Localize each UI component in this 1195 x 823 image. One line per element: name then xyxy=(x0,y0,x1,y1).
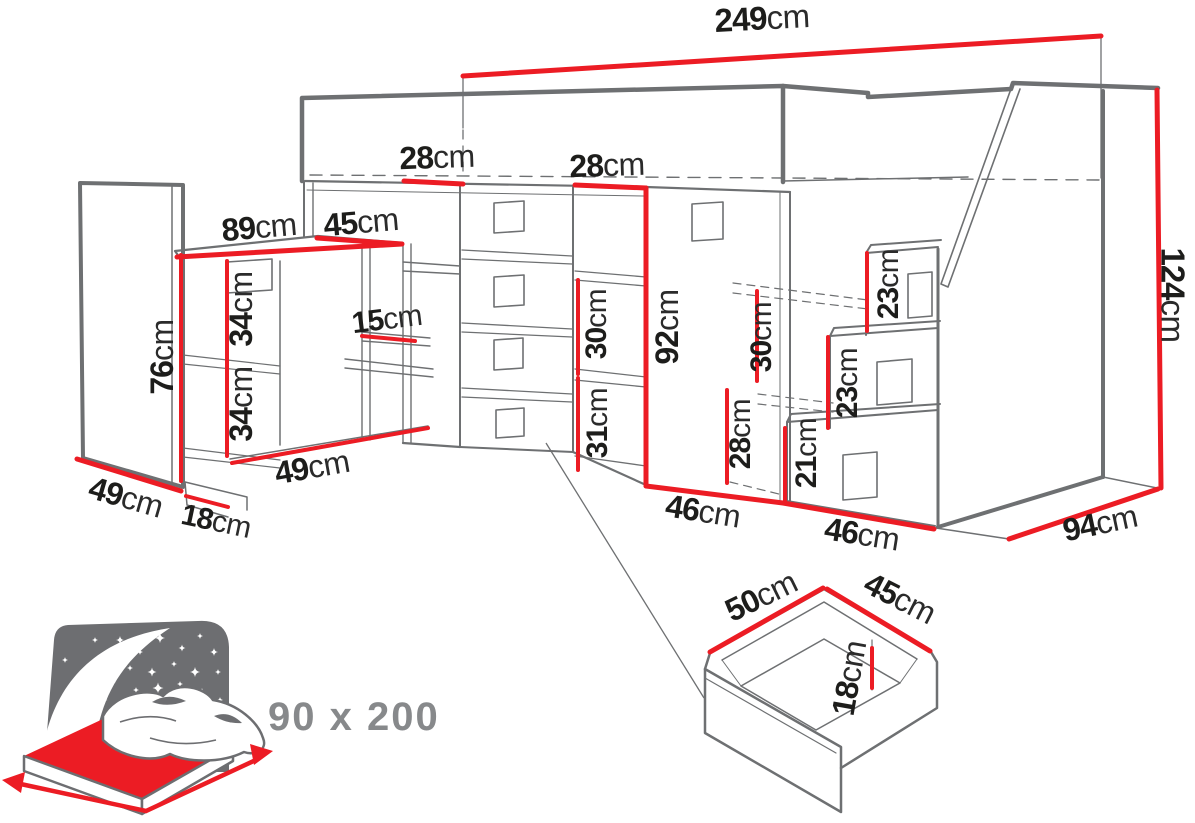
storage-stairs xyxy=(787,240,941,526)
duvet xyxy=(103,687,264,760)
wardrobe-handle-icon xyxy=(692,202,723,241)
drawer-handle-icon xyxy=(496,408,524,438)
step-handle-icon xyxy=(843,452,877,500)
step-handle-icon xyxy=(908,272,932,318)
drawer-detail xyxy=(705,588,937,812)
drawer-leader-line xyxy=(546,443,704,698)
mid-shelf-column xyxy=(575,187,646,485)
drawer-handle-icon xyxy=(494,201,524,233)
stair-railing xyxy=(941,86,1020,287)
drawer-handle-icon xyxy=(494,275,524,307)
bed-size-label: 90 x 200 xyxy=(268,697,440,737)
furniture-dimension-sheet: 249cm28cm28cm89cm45cm76cm34cm34cm15cm49c… xyxy=(0,0,1195,823)
step-handle-icon xyxy=(877,359,912,405)
wardrobe xyxy=(692,191,868,503)
desk-hutch xyxy=(304,182,460,447)
bed-icon xyxy=(2,621,273,814)
right-side-panel xyxy=(936,88,1161,539)
furniture-diagram xyxy=(0,0,1195,823)
dimension-lines xyxy=(77,36,1161,539)
desk-riser xyxy=(227,259,272,293)
drawer-handle-icon xyxy=(494,338,523,370)
cabinet-top-edge xyxy=(305,181,790,192)
loft-bed-unit xyxy=(80,36,1161,539)
left-side-panel xyxy=(80,183,183,487)
drawer-chest xyxy=(460,186,573,452)
